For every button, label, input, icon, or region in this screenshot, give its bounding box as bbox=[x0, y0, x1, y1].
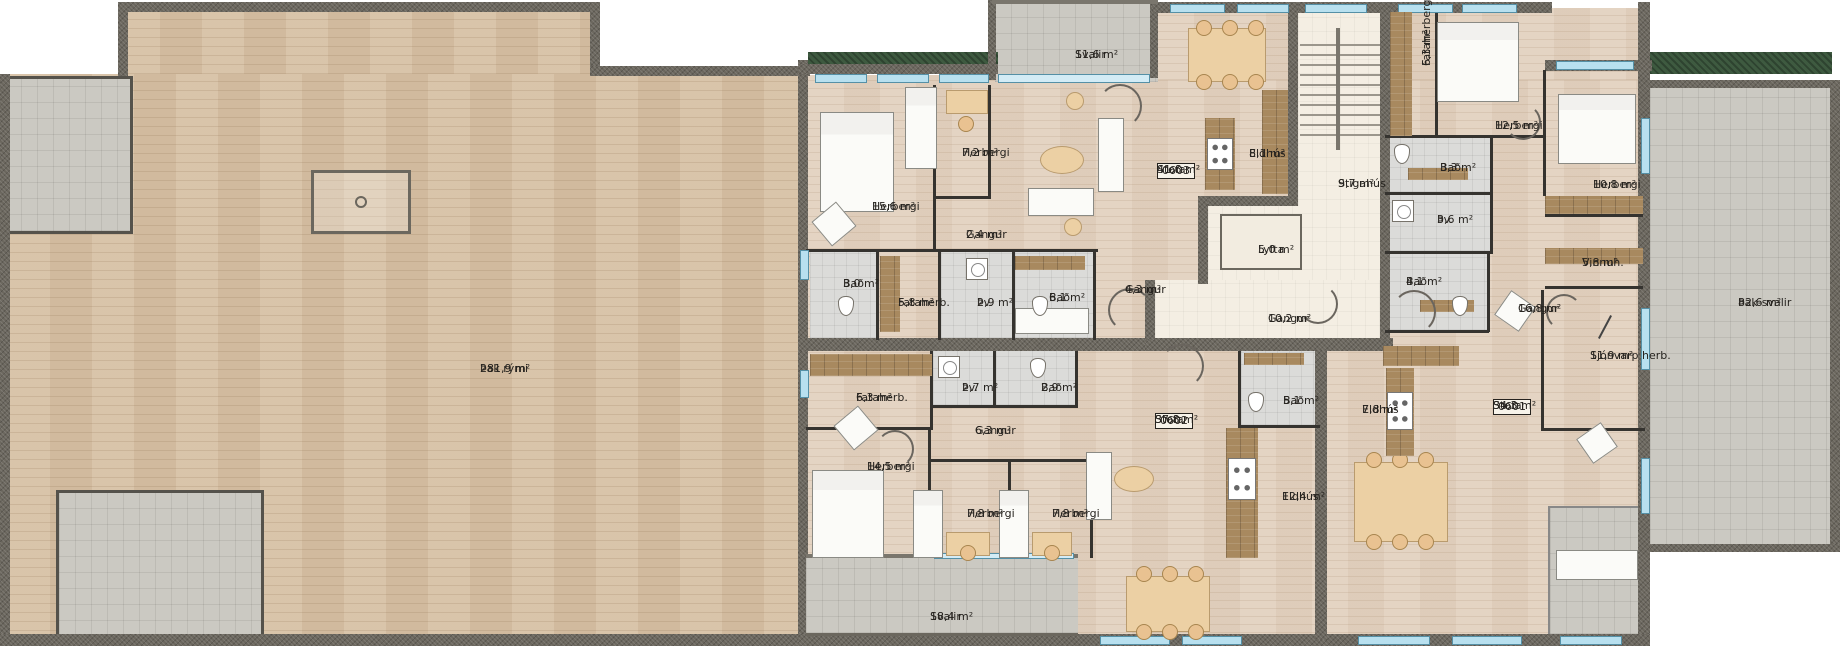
attic-annex-bottom-left bbox=[56, 490, 264, 640]
room-area: 12,5 m² bbox=[1495, 119, 1538, 132]
chair bbox=[1136, 624, 1152, 640]
single-bed bbox=[913, 490, 943, 558]
vanity-counter bbox=[1015, 256, 1085, 270]
closet-shelves bbox=[1545, 196, 1643, 214]
window bbox=[1305, 4, 1367, 13]
partition-wall bbox=[1490, 195, 1493, 253]
door-arc bbox=[1392, 290, 1436, 334]
window bbox=[1170, 4, 1225, 13]
stair-tread bbox=[1300, 74, 1380, 76]
balcony-glass-door bbox=[998, 74, 1150, 83]
chair bbox=[1418, 452, 1434, 468]
room-area: 6,1 m² bbox=[1049, 291, 1085, 304]
door-arc bbox=[1160, 344, 1204, 388]
wall bbox=[0, 634, 815, 646]
room-area: 3,6 m² bbox=[1437, 213, 1473, 226]
partition-wall bbox=[1238, 351, 1241, 427]
window bbox=[1641, 118, 1650, 174]
closet-shelves bbox=[1390, 12, 1412, 136]
partition-wall bbox=[1075, 351, 1078, 407]
closet-shelves bbox=[880, 256, 900, 332]
stair-tread bbox=[1300, 104, 1380, 106]
chair bbox=[1222, 20, 1238, 36]
window bbox=[877, 74, 929, 83]
room-area: 10,8 m² bbox=[1593, 178, 1636, 191]
balcony-south bbox=[806, 558, 1078, 636]
chair bbox=[1222, 74, 1238, 90]
chair bbox=[1418, 534, 1434, 550]
room-area: 5,8 m² bbox=[1582, 256, 1618, 269]
door-arc bbox=[1098, 84, 1142, 128]
chair bbox=[1248, 74, 1264, 90]
elevator-cab bbox=[1220, 214, 1302, 270]
partition-wall bbox=[930, 459, 1093, 462]
room-area: 18,4 m² bbox=[930, 610, 973, 623]
cooktop bbox=[1228, 458, 1256, 500]
balcony-north bbox=[995, 4, 1158, 82]
room-area: 5,0 m² bbox=[1258, 243, 1294, 256]
attic-annex-left bbox=[2, 76, 133, 234]
coffee-table bbox=[1114, 466, 1154, 492]
partition-wall bbox=[1545, 286, 1643, 289]
room-area: 7,8 m² bbox=[1362, 403, 1398, 416]
room-area: 3,3 m² bbox=[1440, 161, 1476, 174]
room-area: 82,6 m² bbox=[1738, 296, 1781, 309]
room-area: 14,5 m² bbox=[867, 460, 910, 473]
room-area: 34,3 m² bbox=[1493, 399, 1536, 412]
window bbox=[1560, 636, 1622, 645]
chair bbox=[958, 116, 974, 132]
room-area: 41,6 m² bbox=[1157, 163, 1200, 176]
partition-wall bbox=[1543, 70, 1546, 196]
partition-wall bbox=[933, 405, 1078, 408]
green-roof-strip bbox=[1650, 52, 1832, 74]
room-area: 2,4 m² bbox=[966, 228, 1002, 241]
chair bbox=[1162, 624, 1178, 640]
chair bbox=[1392, 534, 1408, 550]
room-area: 4,3 m² bbox=[1125, 283, 1161, 296]
desk bbox=[946, 90, 988, 114]
chair bbox=[1136, 566, 1152, 582]
partition-wall bbox=[1487, 254, 1490, 332]
roof-hatch-symbol bbox=[355, 196, 367, 208]
window bbox=[939, 74, 989, 83]
partition-wall bbox=[1385, 330, 1489, 333]
wall bbox=[1198, 196, 1298, 206]
double-bed bbox=[1437, 22, 1519, 102]
chair bbox=[1162, 566, 1178, 582]
partition-wall bbox=[1385, 192, 1493, 195]
balcony-north-rail bbox=[992, 0, 1158, 4]
room-area: 15,6 m² bbox=[872, 200, 915, 213]
wall bbox=[988, 0, 996, 80]
kitchen-counter bbox=[1262, 90, 1288, 194]
chair bbox=[1188, 624, 1204, 640]
partition-wall bbox=[1093, 252, 1096, 340]
wall bbox=[590, 66, 810, 76]
sofa bbox=[1098, 118, 1124, 192]
partition-wall bbox=[993, 351, 996, 407]
wall bbox=[1830, 80, 1840, 552]
stair-tread bbox=[1300, 124, 1380, 126]
room-area: 12,4 m² bbox=[1282, 490, 1325, 503]
stair-tread bbox=[1300, 134, 1380, 136]
wall bbox=[1288, 2, 1298, 202]
chair bbox=[1366, 452, 1382, 468]
single-bed bbox=[999, 490, 1029, 558]
bathtub bbox=[1015, 308, 1089, 334]
vanity-counter bbox=[1244, 353, 1304, 365]
cooktop bbox=[1207, 138, 1233, 170]
attic-floor-upper bbox=[118, 2, 600, 74]
room-area: 6,3 m² bbox=[856, 391, 892, 404]
floor-plan: Þak rými 281,9 m² Svalir 11,6 m² Herberg… bbox=[0, 0, 1840, 653]
stair-tread bbox=[1300, 54, 1380, 56]
window bbox=[815, 74, 867, 83]
room-area: 8,1 m² bbox=[1249, 147, 1285, 160]
partition-wall bbox=[988, 85, 991, 197]
room-area: 7,8 m² bbox=[1052, 507, 1088, 520]
room-area: 281,9 m² bbox=[480, 362, 530, 375]
room-area: 2,9 m² bbox=[977, 296, 1013, 309]
stair-tread bbox=[1300, 94, 1380, 96]
stair-tread bbox=[1300, 44, 1380, 46]
chair bbox=[1366, 534, 1382, 550]
room-area: 10,2 m² bbox=[1268, 312, 1311, 325]
room-area: 2,9 m² bbox=[1041, 381, 1077, 394]
wall bbox=[0, 74, 10, 640]
room-area: 2,7 m² bbox=[962, 381, 998, 394]
bath-floor bbox=[810, 252, 876, 338]
window bbox=[1556, 61, 1634, 70]
window bbox=[1358, 636, 1430, 645]
double-bed bbox=[812, 470, 884, 558]
room-area: 4,1 m² bbox=[1406, 275, 1442, 288]
pouf bbox=[1066, 92, 1084, 110]
closet-shelves bbox=[810, 354, 932, 376]
wall bbox=[590, 2, 600, 74]
washing-machine bbox=[966, 258, 988, 280]
chair bbox=[1196, 20, 1212, 36]
window bbox=[1100, 636, 1170, 645]
partition-wall bbox=[876, 252, 879, 340]
room-area: 6,3 m² bbox=[975, 424, 1011, 437]
wall bbox=[1380, 2, 1390, 340]
washing-machine bbox=[938, 356, 960, 378]
room-area: 7,8 m² bbox=[967, 507, 1003, 520]
roof-terrace-east bbox=[1650, 88, 1832, 546]
partition-wall bbox=[1385, 251, 1493, 254]
room-area: 11,9 m² bbox=[1590, 349, 1633, 362]
window bbox=[800, 370, 809, 398]
wall bbox=[118, 2, 128, 76]
stair-tread bbox=[1300, 64, 1380, 66]
dining-table bbox=[1354, 462, 1448, 542]
room-area: 6,3 m² bbox=[1420, 30, 1433, 66]
wall bbox=[118, 2, 600, 12]
double-bed bbox=[820, 112, 894, 212]
window bbox=[800, 250, 809, 280]
wall bbox=[1198, 196, 1208, 284]
stair-tread bbox=[1300, 84, 1380, 86]
window bbox=[1237, 4, 1289, 13]
partition-wall bbox=[933, 196, 991, 199]
wall bbox=[798, 64, 998, 74]
room-area: 11,6 m² bbox=[1075, 48, 1118, 61]
chair bbox=[960, 545, 976, 561]
room-area: 3,0 m² bbox=[843, 277, 879, 290]
double-bed bbox=[1558, 94, 1636, 164]
stair-railing bbox=[1336, 28, 1340, 150]
room-area: 16,8 m² bbox=[1518, 302, 1561, 315]
chair bbox=[1248, 20, 1264, 36]
room-area: 37,8 m² bbox=[1155, 413, 1198, 426]
pouf bbox=[1064, 218, 1082, 236]
sofa bbox=[1556, 550, 1638, 580]
window bbox=[1462, 4, 1517, 13]
wall bbox=[1650, 80, 1838, 88]
window bbox=[1452, 636, 1522, 645]
room-area: 9,7 m² bbox=[1338, 177, 1374, 190]
partition-wall bbox=[1490, 138, 1493, 193]
room-area: 5,1 m² bbox=[1283, 394, 1319, 407]
window bbox=[1641, 458, 1650, 514]
chair bbox=[1188, 566, 1204, 582]
partition-wall bbox=[1545, 214, 1643, 217]
single-bed bbox=[905, 87, 937, 169]
sofa bbox=[1028, 188, 1094, 216]
room-area: 5,8 m² bbox=[898, 296, 934, 309]
chair bbox=[1196, 74, 1212, 90]
washing-machine bbox=[1392, 200, 1414, 222]
wall bbox=[1650, 544, 1840, 552]
coffee-table bbox=[1040, 146, 1084, 174]
stair-tread bbox=[1300, 114, 1380, 116]
partition-wall bbox=[806, 249, 1098, 252]
kitchen-counter bbox=[1383, 346, 1459, 366]
chair bbox=[1044, 545, 1060, 561]
common-hall-floor bbox=[1155, 280, 1383, 340]
room-area: 7,2 m² bbox=[962, 146, 998, 159]
